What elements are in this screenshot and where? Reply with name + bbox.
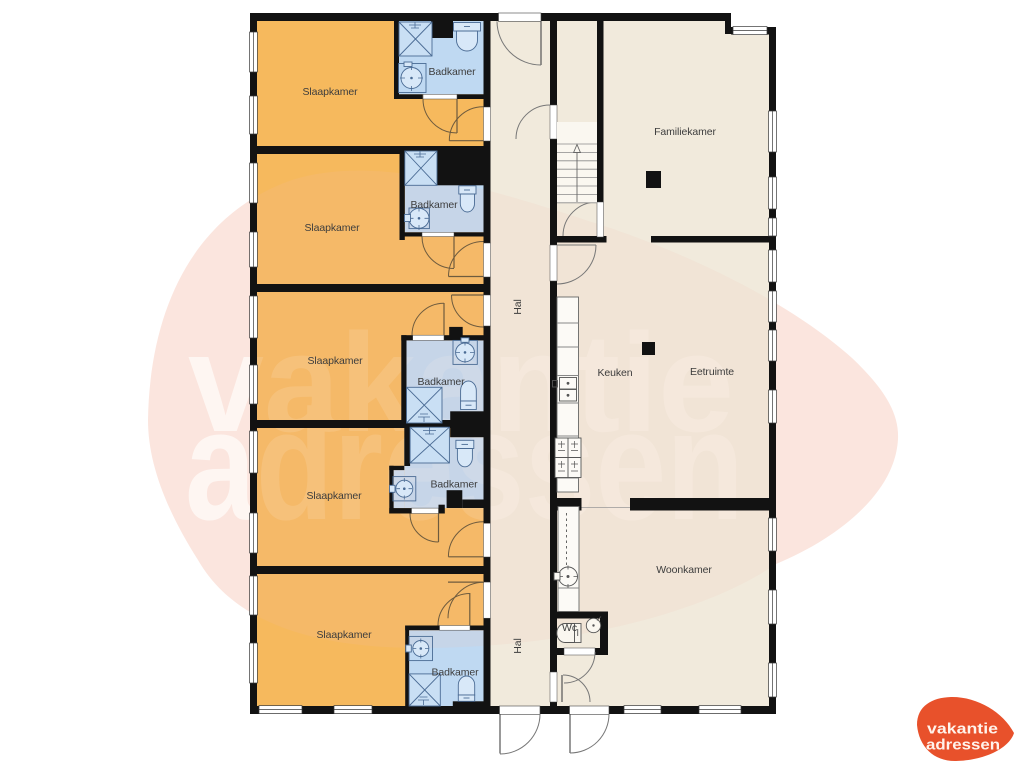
svg-text:Badkamer: Badkamer	[410, 199, 458, 211]
svg-text:Wc: Wc	[562, 622, 577, 634]
svg-text:Badkamer: Badkamer	[430, 479, 478, 491]
svg-text:Woonkamer: Woonkamer	[656, 564, 712, 576]
svg-text:Familiekamer: Familiekamer	[654, 126, 716, 138]
svg-text:Eetruimte: Eetruimte	[690, 366, 734, 378]
svg-text:Badkamer: Badkamer	[417, 376, 465, 388]
svg-text:Slaapkamer: Slaapkamer	[316, 629, 372, 641]
svg-text:Slaapkamer: Slaapkamer	[307, 355, 363, 367]
svg-text:Keuken: Keuken	[597, 367, 632, 379]
svg-text:adressen: adressen	[926, 737, 1000, 754]
svg-text:Slaapkamer: Slaapkamer	[304, 222, 360, 234]
svg-text:Slaapkamer: Slaapkamer	[306, 490, 362, 502]
svg-text:Hal: Hal	[512, 299, 524, 314]
svg-text:Badkamer: Badkamer	[431, 667, 479, 679]
svg-text:Slaapkamer: Slaapkamer	[302, 86, 358, 98]
svg-text:Hal: Hal	[512, 638, 524, 653]
svg-text:Badkamer: Badkamer	[428, 66, 476, 78]
svg-text:vakantie: vakantie	[927, 721, 998, 738]
